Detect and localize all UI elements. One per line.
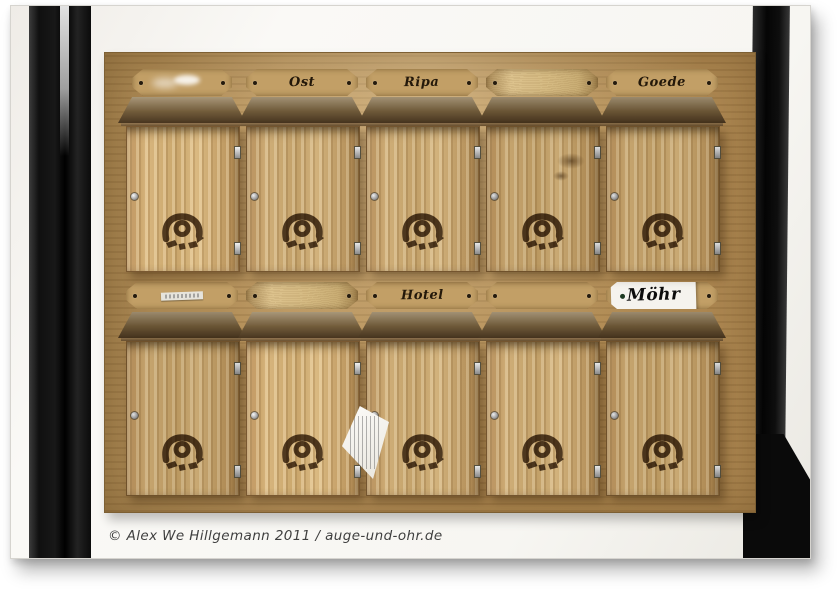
name-plate-label: Hotel bbox=[401, 289, 444, 302]
screw-icon bbox=[493, 81, 497, 85]
posthorn-icon bbox=[519, 213, 565, 253]
lock-screw-icon bbox=[610, 192, 619, 201]
screw-icon bbox=[347, 294, 351, 298]
mailbox-door bbox=[126, 126, 240, 272]
name-plate-ost: Ost bbox=[246, 69, 358, 96]
screw-icon bbox=[139, 81, 143, 85]
posthorn-icon bbox=[279, 213, 325, 253]
posthorn-icon bbox=[279, 434, 325, 474]
screw-icon bbox=[493, 294, 497, 298]
mailbox-door bbox=[606, 126, 720, 272]
screw-icon bbox=[587, 81, 591, 85]
mailbox-door bbox=[486, 126, 600, 272]
screw-icon bbox=[347, 81, 351, 85]
screw-icon bbox=[253, 294, 257, 298]
name-plate-hotel: Hotel bbox=[366, 282, 478, 309]
mailbox-panel: Ost Ripa Goede bbox=[104, 52, 756, 513]
photo-area: Ost Ripa Goede bbox=[10, 5, 811, 559]
name-plate-blank bbox=[486, 69, 598, 96]
mailbox-lid bbox=[238, 312, 366, 338]
name-plate-label: Ost bbox=[289, 76, 315, 89]
name-plate-blank bbox=[486, 282, 598, 309]
screw-icon bbox=[467, 81, 471, 85]
name-plate-moehr: Möhr bbox=[606, 282, 718, 309]
posthorn-icon bbox=[399, 434, 445, 474]
mailbox-door bbox=[246, 341, 360, 496]
hinge-icon bbox=[714, 242, 721, 255]
posthorn-icon bbox=[639, 213, 685, 253]
mailbox bbox=[237, 312, 367, 494]
mailbox-door bbox=[366, 126, 480, 272]
screw-icon bbox=[227, 294, 231, 298]
screw-icon bbox=[613, 81, 617, 85]
mailbox-lid bbox=[598, 97, 726, 123]
posthorn-icon bbox=[159, 213, 205, 253]
screw-icon bbox=[133, 294, 137, 298]
mailbox-door bbox=[486, 341, 600, 496]
posthorn-icon bbox=[519, 434, 565, 474]
screw-icon bbox=[707, 81, 711, 85]
name-plate-ripa: Ripa bbox=[366, 69, 478, 96]
timber-beam-left bbox=[29, 6, 91, 558]
screw-icon bbox=[707, 294, 711, 298]
hinge-icon bbox=[714, 146, 721, 159]
mailbox bbox=[597, 312, 727, 494]
mailbox-lid bbox=[118, 312, 246, 338]
lock-screw-icon bbox=[250, 192, 259, 201]
copyright-text: © Alex We Hillgemann 2011 / auge-und-ohr… bbox=[108, 528, 443, 544]
mailbox bbox=[237, 97, 367, 279]
white-sticker bbox=[161, 291, 203, 300]
paper-name-label: Möhr bbox=[611, 277, 697, 313]
mailbox-door bbox=[246, 126, 360, 272]
lock-screw-icon bbox=[610, 411, 619, 420]
mailbox bbox=[117, 97, 247, 279]
mailbox-lid bbox=[478, 97, 606, 123]
posthorn-icon bbox=[159, 434, 205, 474]
mailbox bbox=[117, 312, 247, 494]
mailbox-door bbox=[606, 341, 720, 496]
lock-screw-icon bbox=[490, 192, 499, 201]
wood-knot bbox=[557, 153, 585, 169]
mailbox bbox=[357, 312, 487, 494]
name-plate-label: Möhr bbox=[627, 286, 681, 304]
screw-icon bbox=[253, 81, 257, 85]
hinge-icon bbox=[714, 362, 721, 375]
screw-icon bbox=[373, 294, 377, 298]
mailbox-lid bbox=[118, 97, 246, 123]
screw-icon bbox=[587, 294, 591, 298]
name-plate-blank bbox=[132, 69, 232, 96]
screw-icon bbox=[620, 293, 625, 298]
screw-icon bbox=[373, 81, 377, 85]
mailbox-lid bbox=[358, 312, 486, 338]
mailbox bbox=[357, 97, 487, 279]
lock-screw-icon bbox=[490, 411, 499, 420]
name-plate-blank bbox=[246, 282, 358, 309]
mailbox-lid bbox=[598, 312, 726, 338]
lock-screw-icon bbox=[250, 411, 259, 420]
lock-screw-icon bbox=[130, 192, 139, 201]
lock-screw-icon bbox=[370, 192, 379, 201]
screw-icon bbox=[221, 81, 225, 85]
mailbox bbox=[597, 97, 727, 279]
framed-photograph: Ost Ripa Goede bbox=[0, 0, 837, 589]
mailbox bbox=[477, 312, 607, 494]
name-plate-label: Goede bbox=[638, 76, 686, 90]
name-plate-goede: Goede bbox=[606, 69, 718, 96]
mailbox-door bbox=[126, 341, 240, 496]
mailbox bbox=[477, 97, 607, 279]
mailbox-lid bbox=[238, 97, 366, 123]
posthorn-icon bbox=[639, 434, 685, 474]
wood-knot bbox=[553, 171, 569, 181]
screw-icon bbox=[467, 294, 471, 298]
posthorn-icon bbox=[399, 213, 445, 253]
name-plate-sticker bbox=[126, 282, 238, 309]
hinge-icon bbox=[714, 465, 721, 478]
mailbox-lid bbox=[358, 97, 486, 123]
lock-screw-icon bbox=[130, 411, 139, 420]
mailbox-lid bbox=[478, 312, 606, 338]
name-plate-label: Ripa bbox=[404, 76, 439, 89]
mailbox-door bbox=[366, 341, 480, 496]
